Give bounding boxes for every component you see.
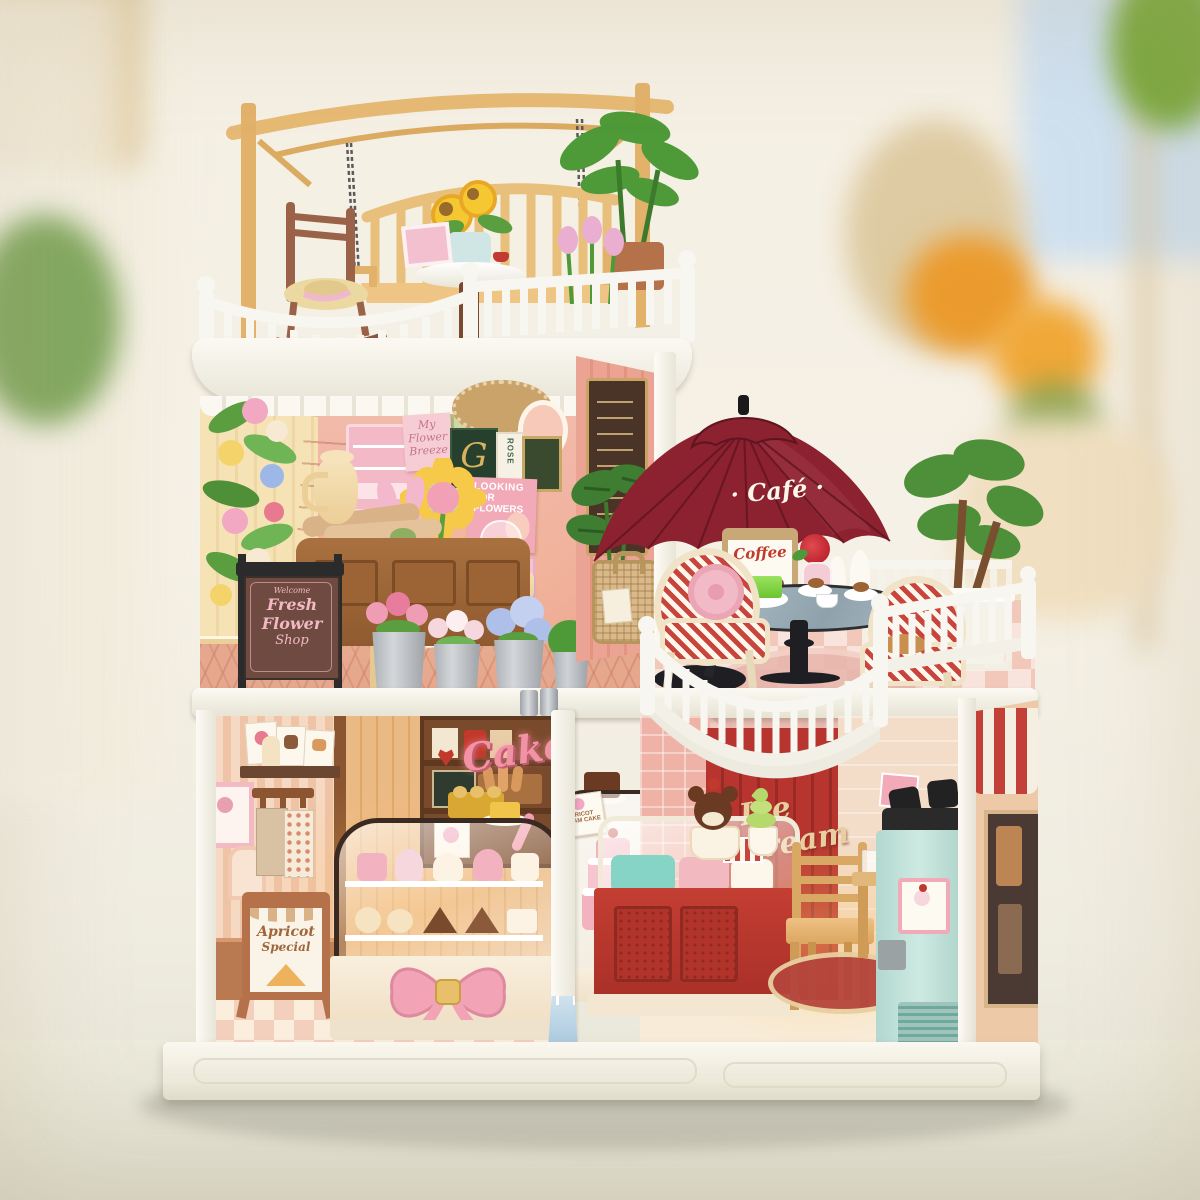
base-plinth (163, 1042, 1040, 1100)
chalkboard-sign: Welcome Fresh Flower Shop (228, 552, 358, 708)
chalkboard-fresh: Fresh (246, 595, 338, 614)
bakery-shelf (240, 722, 340, 778)
dollhouse-photo-scene: My Flower Breeze G ROSE LOOKING FOR FLOW… (0, 0, 1200, 1200)
book-rose-title: ROSE (506, 438, 515, 465)
machine-dispenser (878, 940, 906, 970)
blue-shopping-bag (548, 996, 578, 1048)
exterior-window (984, 810, 1046, 1008)
apricot-sign: Apricot Special (238, 882, 338, 1022)
chalkboard-welcome: Welcome (246, 586, 338, 595)
coat-rack (252, 788, 314, 888)
chalkboard-shop: Shop (246, 633, 338, 648)
apricot-line1: Apricot (250, 924, 322, 940)
apricot-pie-art (266, 964, 306, 986)
cafe-balcony-railing (628, 565, 1043, 815)
paper-bag-print (284, 810, 314, 878)
machine-card (898, 878, 950, 934)
apricot-line2: Special (250, 940, 322, 954)
cream-jug (306, 450, 364, 530)
breeze-line3: Breeze (404, 442, 453, 458)
bakery-display-case (334, 818, 554, 1040)
left-post (196, 710, 216, 1050)
chalkboard-flower: Flower (246, 614, 338, 633)
